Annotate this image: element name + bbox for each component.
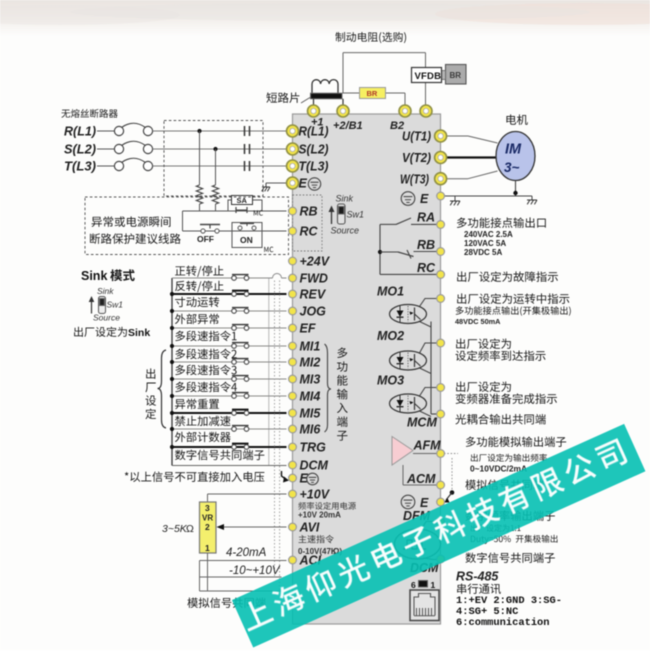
svg-text:R(L1): R(L1)	[64, 125, 96, 139]
svg-text:RC: RC	[417, 261, 436, 275]
svg-text:RA: RA	[417, 211, 435, 225]
svg-text:1: 1	[431, 580, 436, 590]
svg-text:28VDC 5A: 28VDC 5A	[464, 248, 502, 257]
svg-text:MI3: MI3	[300, 373, 321, 387]
svg-text:TRG: TRG	[300, 441, 327, 455]
svg-text:Sw1: Sw1	[107, 300, 124, 310]
svg-text:Sw1: Sw1	[347, 210, 365, 220]
svg-text:240VAC 2.5A: 240VAC 2.5A	[464, 230, 513, 239]
svg-text:VFDB: VFDB	[415, 71, 442, 82]
svg-text:MCM: MCM	[407, 416, 437, 430]
svg-text:+2/B1: +2/B1	[333, 120, 363, 132]
svg-text:JOG: JOG	[300, 305, 327, 319]
svg-text:AVI: AVI	[299, 521, 320, 535]
svg-text:T(L3): T(L3)	[64, 160, 96, 174]
svg-text:E: E	[420, 496, 429, 510]
svg-text:REV: REV	[300, 288, 327, 302]
svg-text:+10V 20mA: +10V 20mA	[298, 511, 341, 520]
svg-text:ON: ON	[240, 235, 253, 245]
svg-text:Source: Source	[331, 226, 360, 236]
svg-text:3: 3	[205, 503, 210, 513]
svg-text:W(T3): W(T3)	[400, 173, 429, 187]
svg-text:RS-485: RS-485	[456, 570, 499, 584]
svg-text:Source: Source	[93, 313, 120, 323]
svg-text:OFF: OFF	[197, 234, 214, 244]
svg-text:ACM: ACM	[406, 472, 436, 486]
svg-text:+10V: +10V	[300, 488, 331, 502]
svg-text:MI4: MI4	[300, 390, 321, 404]
svg-text:MI5: MI5	[300, 407, 322, 421]
svg-text:FWD: FWD	[300, 272, 328, 286]
svg-text:RC: RC	[300, 225, 319, 239]
svg-text:RB: RB	[417, 238, 435, 252]
svg-text:IM: IM	[505, 142, 522, 158]
svg-text:S(L2): S(L2)	[64, 143, 96, 157]
svg-text:6: 6	[411, 580, 416, 590]
svg-text:BR: BR	[450, 71, 462, 80]
svg-text:2: 2	[205, 522, 210, 532]
svg-text:MI6: MI6	[300, 423, 322, 437]
svg-text:3~: 3~	[504, 160, 520, 175]
svg-text:R(L1): R(L1)	[299, 125, 329, 139]
svg-text:MI1: MI1	[300, 340, 321, 354]
svg-text:Ω: Ω	[186, 523, 194, 535]
svg-text:E: E	[420, 192, 429, 206]
svg-text:+24V: +24V	[300, 255, 331, 269]
svg-text:T(L3): T(L3)	[299, 160, 329, 174]
svg-text:BR: BR	[367, 89, 378, 98]
svg-text:MO3: MO3	[377, 374, 404, 388]
svg-text:Sink: Sink	[336, 194, 354, 204]
svg-text:U(T1): U(T1)	[402, 130, 431, 144]
svg-text:V(T2): V(T2)	[402, 151, 431, 165]
svg-text:3~5K: 3~5K	[162, 523, 188, 535]
svg-text:48VDC 50mA: 48VDC 50mA	[455, 317, 501, 326]
svg-text:4-20mA: 4-20mA	[226, 547, 267, 559]
svg-text:MO2: MO2	[377, 329, 404, 343]
svg-text:Sink: Sink	[81, 269, 107, 283]
svg-text:Sink: Sink	[97, 286, 114, 296]
svg-text:6:communication: 6:communication	[456, 617, 550, 629]
svg-text:EF: EF	[300, 322, 316, 336]
svg-text:AFM: AFM	[413, 439, 442, 453]
svg-text:E: E	[299, 177, 308, 191]
svg-text:DCM: DCM	[300, 459, 329, 473]
svg-text:1: 1	[205, 543, 210, 553]
svg-text:MO1: MO1	[377, 285, 404, 299]
svg-text:Sink: Sink	[128, 327, 150, 339]
svg-text:0-10V(47K: 0-10V(47K	[298, 547, 337, 556]
svg-text:-10~+10V: -10~+10V	[229, 565, 281, 577]
svg-text:RB: RB	[300, 205, 318, 219]
svg-text:MI2: MI2	[300, 356, 321, 370]
svg-text:S(L2): S(L2)	[299, 143, 329, 157]
svg-text:120VAC 5A: 120VAC 5A	[464, 239, 506, 248]
